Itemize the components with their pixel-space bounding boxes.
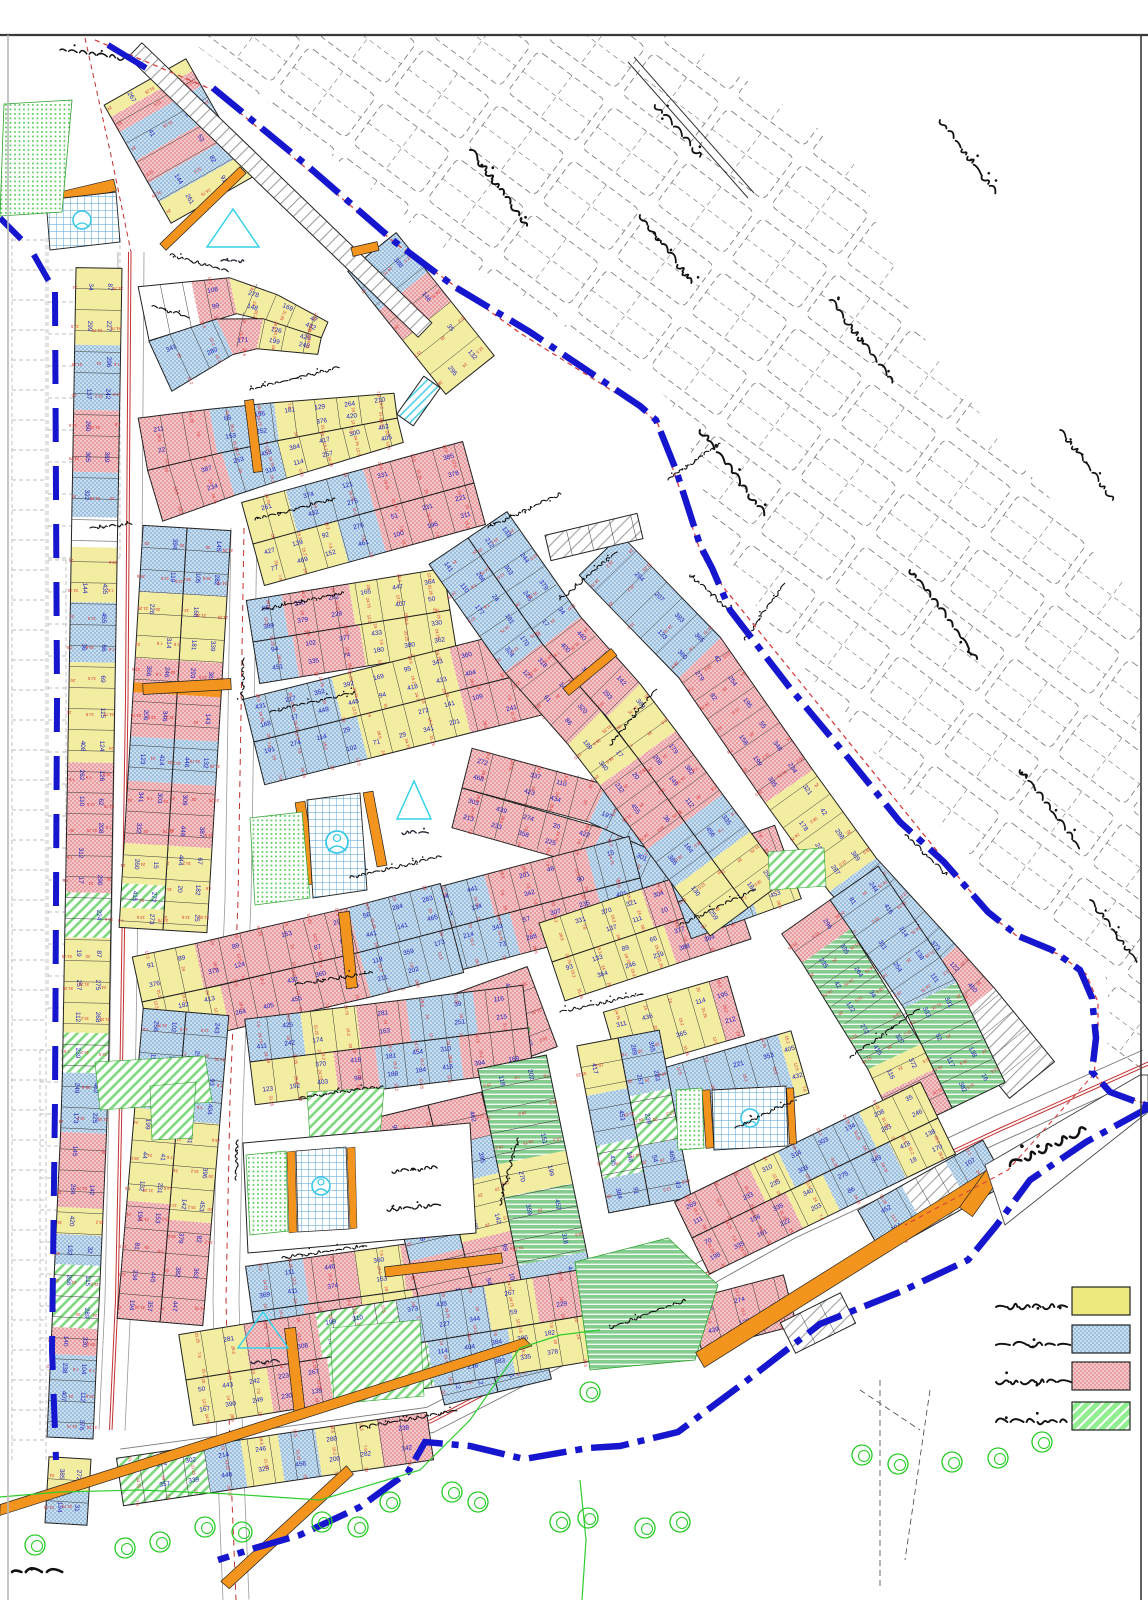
svg-text:24.75: 24.75 xyxy=(208,798,219,804)
svg-text:28.6: 28.6 xyxy=(108,560,117,565)
svg-text:111: 111 xyxy=(284,1268,295,1276)
svg-text:31.25: 31.25 xyxy=(62,986,73,991)
svg-text:366: 366 xyxy=(145,665,153,677)
svg-text:224: 224 xyxy=(95,910,102,921)
svg-text:31.25: 31.25 xyxy=(86,1425,97,1431)
svg-text:132: 132 xyxy=(66,1244,74,1256)
svg-text:24: 24 xyxy=(58,1119,64,1124)
svg-text:363: 363 xyxy=(192,1267,200,1279)
svg-text:12.5: 12.5 xyxy=(160,576,169,581)
svg-text:24.75: 24.75 xyxy=(68,456,79,461)
svg-text:309: 309 xyxy=(181,794,189,806)
svg-text:289: 289 xyxy=(83,1307,91,1319)
svg-text:314: 314 xyxy=(165,637,173,649)
svg-text:123: 123 xyxy=(139,753,147,765)
svg-text:31.25: 31.25 xyxy=(78,982,89,987)
svg-text:15.2: 15.2 xyxy=(479,1049,485,1058)
svg-text:104: 104 xyxy=(80,1363,88,1375)
svg-text:7.8: 7.8 xyxy=(146,796,153,801)
svg-text:67: 67 xyxy=(196,857,203,865)
svg-text:137: 137 xyxy=(85,389,92,400)
svg-text:251: 251 xyxy=(454,1018,466,1026)
svg-text:24.75: 24.75 xyxy=(66,1424,77,1430)
svg-text:28.6: 28.6 xyxy=(136,574,145,579)
svg-text:188: 188 xyxy=(387,1070,399,1078)
svg-text:31.25: 31.25 xyxy=(134,1304,146,1310)
svg-text:24.75: 24.75 xyxy=(162,829,173,835)
svg-text:153: 153 xyxy=(154,1212,162,1224)
svg-text:163: 163 xyxy=(379,1027,391,1035)
svg-text:34: 34 xyxy=(87,283,94,291)
svg-text:24: 24 xyxy=(101,985,106,990)
svg-text:425: 425 xyxy=(282,1021,294,1029)
svg-text:396: 396 xyxy=(201,1167,209,1179)
svg-text:194: 194 xyxy=(128,1299,136,1311)
svg-text:418: 418 xyxy=(350,1056,362,1064)
svg-text:273: 273 xyxy=(148,913,156,925)
svg-text:28.6: 28.6 xyxy=(420,998,426,1007)
svg-text:28.6: 28.6 xyxy=(448,1054,454,1063)
svg-text:24.75: 24.75 xyxy=(130,713,141,719)
svg-text:379: 379 xyxy=(177,1232,185,1244)
svg-text:7.8: 7.8 xyxy=(113,362,120,367)
svg-text:284: 284 xyxy=(69,1183,77,1195)
svg-text:20: 20 xyxy=(71,494,76,499)
svg-text:20: 20 xyxy=(70,678,75,683)
svg-text:387: 387 xyxy=(198,826,206,838)
svg-text:65: 65 xyxy=(224,414,233,422)
svg-text:249: 249 xyxy=(73,1083,80,1094)
svg-text:24.75: 24.75 xyxy=(194,1305,206,1311)
svg-text:305: 305 xyxy=(84,452,91,463)
svg-text:293: 293 xyxy=(189,667,197,679)
svg-text:15.2: 15.2 xyxy=(420,1057,426,1066)
svg-text:411: 411 xyxy=(287,1287,299,1295)
svg-text:12.5: 12.5 xyxy=(68,423,77,428)
svg-text:7.8: 7.8 xyxy=(62,878,69,883)
svg-text:7.8: 7.8 xyxy=(72,1367,79,1372)
svg-text:239: 239 xyxy=(74,1048,81,1059)
svg-text:24.75: 24.75 xyxy=(189,759,200,765)
svg-text:24.75: 24.75 xyxy=(112,286,123,291)
svg-text:24.75: 24.75 xyxy=(67,588,78,593)
svg-text:66: 66 xyxy=(100,644,107,652)
svg-text:31.25: 31.25 xyxy=(137,606,148,612)
svg-text:15.2: 15.2 xyxy=(239,331,245,340)
svg-text:82: 82 xyxy=(195,1235,203,1243)
svg-text:31: 31 xyxy=(73,1504,80,1512)
svg-text:31.25: 31.25 xyxy=(209,764,220,770)
svg-text:140: 140 xyxy=(62,1335,70,1347)
svg-text:145: 145 xyxy=(71,1145,79,1157)
svg-text:28.6: 28.6 xyxy=(294,1075,300,1084)
svg-text:24: 24 xyxy=(96,361,101,366)
svg-text:448: 448 xyxy=(179,825,187,837)
svg-text:7.8: 7.8 xyxy=(205,886,212,891)
svg-text:382: 382 xyxy=(174,1266,182,1278)
svg-text:24: 24 xyxy=(72,285,77,290)
svg-text:407: 407 xyxy=(60,1390,68,1402)
svg-text:290: 290 xyxy=(96,875,103,886)
svg-text:31.25: 31.25 xyxy=(99,1017,110,1022)
svg-text:24: 24 xyxy=(88,881,93,886)
svg-text:28.6: 28.6 xyxy=(81,1085,90,1090)
svg-text:15.2: 15.2 xyxy=(80,1050,89,1055)
svg-text:20: 20 xyxy=(69,828,74,833)
svg-text:41: 41 xyxy=(159,1153,167,1161)
svg-text:20: 20 xyxy=(71,393,76,398)
svg-text:394: 394 xyxy=(171,538,179,550)
svg-text:62: 62 xyxy=(97,798,104,806)
svg-text:12.5: 12.5 xyxy=(200,1028,209,1034)
svg-text:181: 181 xyxy=(190,639,198,651)
svg-text:7.8: 7.8 xyxy=(166,1155,173,1161)
svg-text:7.8: 7.8 xyxy=(156,641,163,646)
svg-text:15.2: 15.2 xyxy=(90,1282,99,1287)
svg-text:447: 447 xyxy=(171,1300,179,1312)
svg-text:110: 110 xyxy=(78,796,85,807)
svg-text:408: 408 xyxy=(79,741,86,752)
svg-text:31.25: 31.25 xyxy=(97,1117,108,1122)
svg-text:15.2: 15.2 xyxy=(161,1217,170,1223)
svg-text:24: 24 xyxy=(69,614,74,619)
svg-text:243: 243 xyxy=(213,1022,221,1034)
svg-text:12.5: 12.5 xyxy=(181,915,190,920)
svg-text:225: 225 xyxy=(91,1113,98,1124)
svg-text:24.75: 24.75 xyxy=(110,326,121,331)
svg-text:7.8: 7.8 xyxy=(88,1368,95,1373)
svg-text:303: 303 xyxy=(156,792,164,804)
svg-text:272: 272 xyxy=(150,891,158,903)
svg-text:7.8: 7.8 xyxy=(124,1186,131,1192)
svg-text:142: 142 xyxy=(88,1184,96,1196)
svg-text:142: 142 xyxy=(180,1198,188,1210)
svg-text:28.6: 28.6 xyxy=(85,1394,94,1399)
svg-text:12.5: 12.5 xyxy=(204,833,213,838)
svg-text:238: 238 xyxy=(61,1362,69,1374)
svg-text:28.6: 28.6 xyxy=(211,1138,220,1144)
svg-text:7.8: 7.8 xyxy=(85,775,92,780)
svg-text:32: 32 xyxy=(86,1246,93,1254)
svg-text:87: 87 xyxy=(106,283,113,291)
svg-text:24.75: 24.75 xyxy=(76,1186,87,1192)
svg-text:7.8: 7.8 xyxy=(66,645,73,650)
svg-text:181: 181 xyxy=(385,1052,397,1060)
svg-text:332: 332 xyxy=(135,822,143,834)
svg-text:24.75: 24.75 xyxy=(214,1056,226,1062)
svg-text:24.75: 24.75 xyxy=(43,1505,54,1511)
svg-text:59: 59 xyxy=(510,1308,519,1316)
svg-text:24.75: 24.75 xyxy=(91,328,102,333)
svg-text:15.2: 15.2 xyxy=(346,1027,352,1036)
svg-text:28.6: 28.6 xyxy=(130,1156,139,1162)
svg-text:24.75: 24.75 xyxy=(103,804,114,809)
svg-text:132: 132 xyxy=(202,757,210,769)
svg-text:7.8: 7.8 xyxy=(142,1027,149,1033)
svg-text:12.5: 12.5 xyxy=(118,1244,127,1250)
svg-text:115: 115 xyxy=(84,1276,92,1287)
svg-text:12.5: 12.5 xyxy=(86,802,95,807)
svg-text:414: 414 xyxy=(158,754,166,766)
svg-text:50: 50 xyxy=(198,1385,207,1393)
svg-text:31.25: 31.25 xyxy=(142,1187,154,1193)
svg-text:15.2: 15.2 xyxy=(286,1012,292,1021)
svg-text:28.6: 28.6 xyxy=(85,645,94,650)
svg-text:435: 435 xyxy=(101,584,108,595)
svg-text:7.8: 7.8 xyxy=(108,647,115,652)
svg-text:15.2: 15.2 xyxy=(95,1220,104,1225)
svg-text:24.75: 24.75 xyxy=(61,1504,72,1510)
svg-text:262: 262 xyxy=(78,770,85,781)
svg-text:455: 455 xyxy=(100,613,107,624)
svg-text:15.2: 15.2 xyxy=(388,1043,394,1052)
svg-text:44: 44 xyxy=(141,1151,149,1159)
svg-text:453: 453 xyxy=(198,1200,206,1212)
svg-text:182: 182 xyxy=(194,884,202,896)
svg-text:242: 242 xyxy=(284,1039,296,1047)
svg-text:15.2: 15.2 xyxy=(187,1205,196,1211)
svg-text:12.5: 12.5 xyxy=(179,1027,188,1033)
svg-text:376: 376 xyxy=(78,1419,86,1431)
svg-text:20: 20 xyxy=(176,885,183,893)
svg-text:12.5: 12.5 xyxy=(70,324,79,329)
svg-text:7.8: 7.8 xyxy=(157,1249,164,1255)
svg-text:20: 20 xyxy=(66,710,71,715)
svg-text:370: 370 xyxy=(315,1060,327,1068)
svg-text:246: 246 xyxy=(163,666,171,678)
svg-text:28.6: 28.6 xyxy=(242,348,248,357)
svg-text:7.8: 7.8 xyxy=(105,825,112,830)
svg-text:31.25: 31.25 xyxy=(195,613,206,619)
svg-text:12.5: 12.5 xyxy=(147,715,156,720)
svg-text:394: 394 xyxy=(474,1059,486,1067)
svg-text:7.8: 7.8 xyxy=(114,422,121,427)
svg-text:12.5: 12.5 xyxy=(198,675,207,680)
svg-text:31.25: 31.25 xyxy=(198,915,209,921)
svg-text:281: 281 xyxy=(377,1009,389,1017)
svg-text:87: 87 xyxy=(95,950,102,958)
svg-text:24.75: 24.75 xyxy=(156,1022,168,1028)
svg-text:15.2: 15.2 xyxy=(76,1116,85,1121)
svg-text:7.8: 7.8 xyxy=(66,855,73,860)
svg-text:12.5: 12.5 xyxy=(87,616,96,621)
svg-text:369: 369 xyxy=(103,452,110,463)
svg-text:19: 19 xyxy=(75,949,82,957)
svg-text:199: 199 xyxy=(144,1118,152,1130)
svg-text:28.6: 28.6 xyxy=(202,576,211,581)
svg-text:12.5: 12.5 xyxy=(85,712,94,717)
svg-text:144: 144 xyxy=(81,583,88,594)
svg-text:12.5: 12.5 xyxy=(136,915,145,920)
svg-text:174: 174 xyxy=(312,1036,324,1044)
svg-text:7.8: 7.8 xyxy=(68,777,75,782)
svg-text:446: 446 xyxy=(183,756,191,768)
svg-text:15.2: 15.2 xyxy=(102,772,111,777)
svg-text:31.25: 31.25 xyxy=(222,548,233,554)
svg-text:20: 20 xyxy=(85,954,90,959)
svg-text:24.75: 24.75 xyxy=(157,918,168,924)
svg-text:112: 112 xyxy=(74,1012,81,1023)
svg-text:17: 17 xyxy=(77,876,84,884)
svg-text:231: 231 xyxy=(156,1182,164,1194)
svg-text:12.5: 12.5 xyxy=(87,676,96,681)
svg-text:7.8: 7.8 xyxy=(173,642,180,647)
svg-text:15: 15 xyxy=(152,861,159,869)
svg-text:266: 266 xyxy=(65,1274,73,1286)
svg-text:404: 404 xyxy=(206,1103,214,1115)
svg-text:416: 416 xyxy=(442,1063,454,1071)
svg-text:28.6: 28.6 xyxy=(167,1234,176,1240)
svg-text:357: 357 xyxy=(146,1300,154,1312)
svg-text:339: 339 xyxy=(209,640,217,652)
svg-text:415: 415 xyxy=(131,890,139,902)
svg-text:15.2: 15.2 xyxy=(94,394,103,399)
svg-text:50: 50 xyxy=(428,595,437,603)
svg-text:7.8: 7.8 xyxy=(155,672,162,677)
svg-text:31.25: 31.25 xyxy=(217,615,228,621)
svg-text:143: 143 xyxy=(204,713,212,725)
svg-text:24.75: 24.75 xyxy=(103,712,114,717)
svg-text:275: 275 xyxy=(94,980,101,991)
svg-text:81: 81 xyxy=(133,1242,141,1250)
svg-text:260: 260 xyxy=(133,858,141,870)
svg-text:15.2: 15.2 xyxy=(204,1240,213,1246)
svg-text:420: 420 xyxy=(68,1215,76,1227)
svg-text:12.5: 12.5 xyxy=(98,1052,107,1057)
svg-text:123: 123 xyxy=(262,1085,274,1093)
svg-text:12.5: 12.5 xyxy=(117,1272,126,1278)
svg-text:15.2: 15.2 xyxy=(393,1060,399,1069)
svg-text:24.75: 24.75 xyxy=(138,1216,150,1222)
svg-text:341: 341 xyxy=(137,791,145,803)
svg-text:445: 445 xyxy=(149,1271,157,1283)
svg-text:24.75: 24.75 xyxy=(216,581,227,587)
svg-text:12.5: 12.5 xyxy=(174,579,183,584)
svg-text:31.25: 31.25 xyxy=(89,496,100,501)
svg-text:15.2: 15.2 xyxy=(165,715,174,720)
svg-text:411: 411 xyxy=(256,1042,268,1050)
svg-text:385: 385 xyxy=(58,1468,66,1480)
svg-text:215: 215 xyxy=(496,1013,508,1021)
svg-text:322: 322 xyxy=(83,490,90,501)
svg-text:242: 242 xyxy=(104,389,111,400)
svg-text:12.5: 12.5 xyxy=(163,1186,172,1192)
svg-text:102: 102 xyxy=(170,1021,178,1033)
svg-text:310: 310 xyxy=(440,1045,452,1053)
svg-text:7.8: 7.8 xyxy=(107,588,114,593)
svg-text:234: 234 xyxy=(131,1269,139,1281)
svg-text:15.2: 15.2 xyxy=(190,1169,199,1175)
svg-text:124: 124 xyxy=(98,741,105,752)
svg-text:15.2: 15.2 xyxy=(80,1016,89,1021)
svg-text:312: 312 xyxy=(77,848,84,859)
svg-text:296: 296 xyxy=(105,357,112,368)
svg-text:7.8: 7.8 xyxy=(117,918,124,923)
svg-text:31.25: 31.25 xyxy=(89,425,100,430)
svg-text:31.25: 31.25 xyxy=(71,362,82,367)
svg-text:12.5: 12.5 xyxy=(131,667,140,672)
svg-text:24: 24 xyxy=(68,558,73,563)
svg-text:12.5: 12.5 xyxy=(447,1074,453,1083)
svg-text:69: 69 xyxy=(99,675,106,683)
svg-text:112: 112 xyxy=(79,1392,87,1403)
svg-text:184: 184 xyxy=(415,1066,427,1074)
svg-text:15.2: 15.2 xyxy=(112,392,121,397)
svg-text:116: 116 xyxy=(493,995,505,1003)
svg-text:24: 24 xyxy=(108,746,113,751)
svg-text:94: 94 xyxy=(271,645,280,653)
svg-text:28.6: 28.6 xyxy=(86,1342,95,1347)
svg-text:15.2: 15.2 xyxy=(182,861,191,866)
svg-text:105: 105 xyxy=(194,572,202,584)
svg-text:20: 20 xyxy=(109,496,114,501)
svg-text:31.25: 31.25 xyxy=(86,828,97,833)
svg-text:7.8: 7.8 xyxy=(63,1049,70,1054)
svg-text:7.8: 7.8 xyxy=(216,1083,223,1089)
svg-text:15.2: 15.2 xyxy=(321,1051,327,1060)
svg-text:7.8: 7.8 xyxy=(196,1105,203,1111)
svg-text:20: 20 xyxy=(106,877,111,882)
svg-text:24.75: 24.75 xyxy=(61,954,72,959)
svg-text:145: 145 xyxy=(215,540,223,552)
svg-text:15.2: 15.2 xyxy=(394,1082,400,1091)
svg-text:28.6: 28.6 xyxy=(104,917,113,922)
